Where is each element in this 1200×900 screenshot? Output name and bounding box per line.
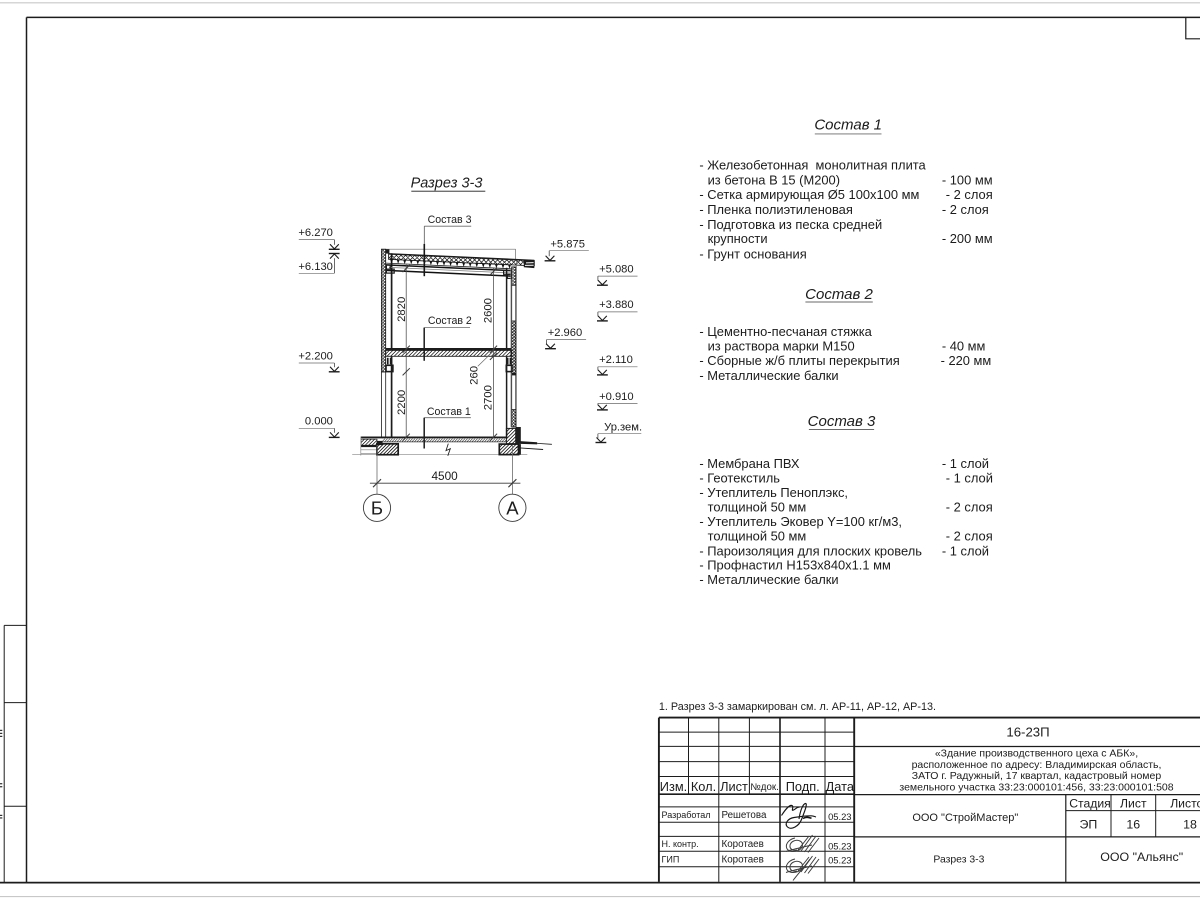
svg-text:ЗАТО г. Радужный, 17 квартал,: ЗАТО г. Радужный, 17 квартал, кадастровы… [912, 770, 1162, 782]
svg-text:Разрез 3-3: Разрез 3-3 [933, 855, 984, 866]
svg-text:+6.130: +6.130 [298, 261, 333, 273]
svg-text:- 200 мм: - 200 мм [942, 231, 993, 246]
svg-text:+3.880: +3.880 [599, 299, 634, 311]
svg-text:- 2 слоя: - 2 слоя [942, 202, 989, 217]
svg-text:Состав 1: Состав 1 [814, 117, 882, 134]
svg-text:земельного участка 33:23:00010: земельного участка 33:23:000101:456, 33:… [899, 781, 1173, 793]
svg-text:2700: 2700 [482, 385, 494, 410]
svg-text:Коротаев: Коротаев [722, 839, 764, 850]
svg-text:А: А [506, 497, 519, 518]
svg-text:Состав 2: Состав 2 [805, 286, 873, 303]
svg-text:- Геотекстиль: - Геотекстиль [699, 470, 780, 485]
svg-text:- Утеплитель Эковер Y=100 кг/м: - Утеплитель Эковер Y=100 кг/м3, [699, 514, 902, 529]
svg-text:260: 260 [468, 366, 480, 385]
svg-text:- 1 слой: - 1 слой [942, 456, 989, 471]
svg-text:Дата: Дата [826, 779, 855, 794]
svg-text:крупности: крупности [708, 231, 768, 246]
svg-text:2820: 2820 [396, 297, 408, 322]
svg-text:Коротаев: Коротаев [722, 854, 764, 865]
svg-text:2200: 2200 [396, 390, 408, 415]
svg-text:толщиной 50 мм: толщиной 50 мм [708, 528, 807, 543]
svg-text:- 2 слоя: - 2 слоя [946, 187, 993, 202]
svg-text:- 2 слоя: - 2 слоя [946, 528, 993, 543]
svg-text:Б: Б [371, 497, 383, 518]
svg-text:05.23: 05.23 [828, 811, 851, 822]
svg-text:Кол.: Кол. [691, 779, 716, 794]
svg-text:Состав 2: Состав 2 [428, 315, 472, 327]
svg-text:- Металлические балки: - Металлические балки [699, 572, 838, 587]
svg-text:- Пароизоляция для плоских кро: - Пароизоляция для плоских кровель [699, 543, 922, 558]
svg-text:Лист: Лист [720, 779, 748, 794]
svg-text:ГИП: ГИП [662, 854, 680, 864]
svg-text:+2.960: +2.960 [548, 327, 583, 339]
svg-text:из бетона В 15 (М200): из бетона В 15 (М200) [708, 172, 840, 187]
svg-text:+5.080: +5.080 [599, 263, 634, 275]
svg-text:0.000: 0.000 [305, 416, 333, 428]
svg-text:«Здание производственного цеха: «Здание производственного цеха с АБК», [935, 748, 1138, 760]
svg-text:ООО "СтройМастер": ООО "СтройМастер" [912, 812, 1018, 824]
svg-text:- Мембрана ПВХ: - Мембрана ПВХ [699, 456, 800, 471]
svg-text:+2.200: +2.200 [298, 351, 333, 363]
svg-text:Разработал: Разработал [662, 810, 711, 820]
svg-text:16: 16 [1126, 818, 1140, 832]
svg-text:- Сетка армирующая Ø5 100х100: - Сетка армирующая Ø5 100х100 мм [699, 187, 919, 202]
svg-text:05.23: 05.23 [828, 854, 851, 865]
svg-text:4500: 4500 [431, 469, 458, 483]
svg-text:Подп.: Подп. [786, 779, 820, 794]
svg-text:расположенное по адресу: Влади: расположенное по адресу: Владимирская об… [912, 759, 1162, 771]
svg-text:16-23П: 16-23П [1006, 725, 1049, 740]
svg-text:- Металлические балки: - Металлические балки [699, 368, 838, 383]
svg-text:Н. контр.: Н. контр. [662, 839, 699, 849]
svg-text:- Цементно-песчаная стяжка: - Цементно-песчаная стяжка [699, 324, 872, 339]
svg-text:Ур.зем.: Ур.зем. [604, 422, 642, 434]
svg-text:из раствора марки М150: из раствора марки М150 [708, 339, 855, 354]
svg-text:№док.: №док. [750, 782, 778, 793]
svg-text:05.23: 05.23 [828, 840, 851, 851]
svg-text:1. Разрез 3-3 замаркирован см.: 1. Разрез 3-3 замаркирован см. л. АР-11,… [659, 701, 936, 713]
svg-text:Листов: Листов [1170, 796, 1200, 810]
svg-text:- Грунт основания: - Грунт основания [699, 247, 806, 262]
svg-text:Разрез 3-3: Разрез 3-3 [411, 176, 483, 192]
svg-text:Состав 3: Состав 3 [808, 413, 876, 430]
svg-text:- Пленка полиэтиленовая: - Пленка полиэтиленовая [699, 202, 852, 217]
svg-text:- Профнастил Н153х840х1.1 мм: - Профнастил Н153х840х1.1 мм [699, 558, 890, 573]
svg-text:Лист: Лист [1120, 796, 1147, 810]
svg-text:+0.910: +0.910 [599, 391, 634, 403]
svg-text:ООО "Альянс": ООО "Альянс" [1100, 850, 1183, 864]
svg-text:Изм.: Изм. [660, 779, 687, 794]
svg-text:- Подготовка из песка средней: - Подготовка из песка средней [699, 217, 882, 232]
svg-text:- 40 мм: - 40 мм [942, 339, 986, 354]
svg-text:толщиной 50 мм: толщиной 50 мм [708, 500, 807, 515]
svg-text:- Железобетонная монолитная п: - Железобетонная монолитная плита [699, 157, 926, 172]
svg-text:Состав 1: Состав 1 [427, 406, 471, 418]
svg-text:Решетова: Решетова [722, 810, 767, 821]
svg-text:Состав 3: Состав 3 [428, 214, 472, 226]
svg-text:- Сборные ж/б плиты перекрытия: - Сборные ж/б плиты перекрытия [699, 353, 899, 368]
svg-text:+5.875: +5.875 [550, 238, 585, 250]
svg-text:+2.110: +2.110 [599, 354, 633, 366]
svg-text:ЭП: ЭП [1079, 818, 1097, 832]
svg-text:- 1 слой: - 1 слой [942, 543, 989, 558]
svg-text:2600: 2600 [482, 298, 494, 323]
svg-text:- 220 мм: - 220 мм [941, 353, 992, 368]
svg-text:18: 18 [1183, 818, 1197, 832]
svg-text:Стадия: Стадия [1069, 796, 1111, 810]
svg-text:- 100 мм: - 100 мм [942, 172, 993, 187]
svg-text:- 1 слой: - 1 слой [946, 470, 993, 485]
svg-text:- 2 слоя: - 2 слоя [946, 500, 993, 515]
svg-text:+6.270: +6.270 [298, 227, 333, 239]
svg-text:- Утеплитель Пеноплэкс,: - Утеплитель Пеноплэкс, [699, 485, 848, 500]
